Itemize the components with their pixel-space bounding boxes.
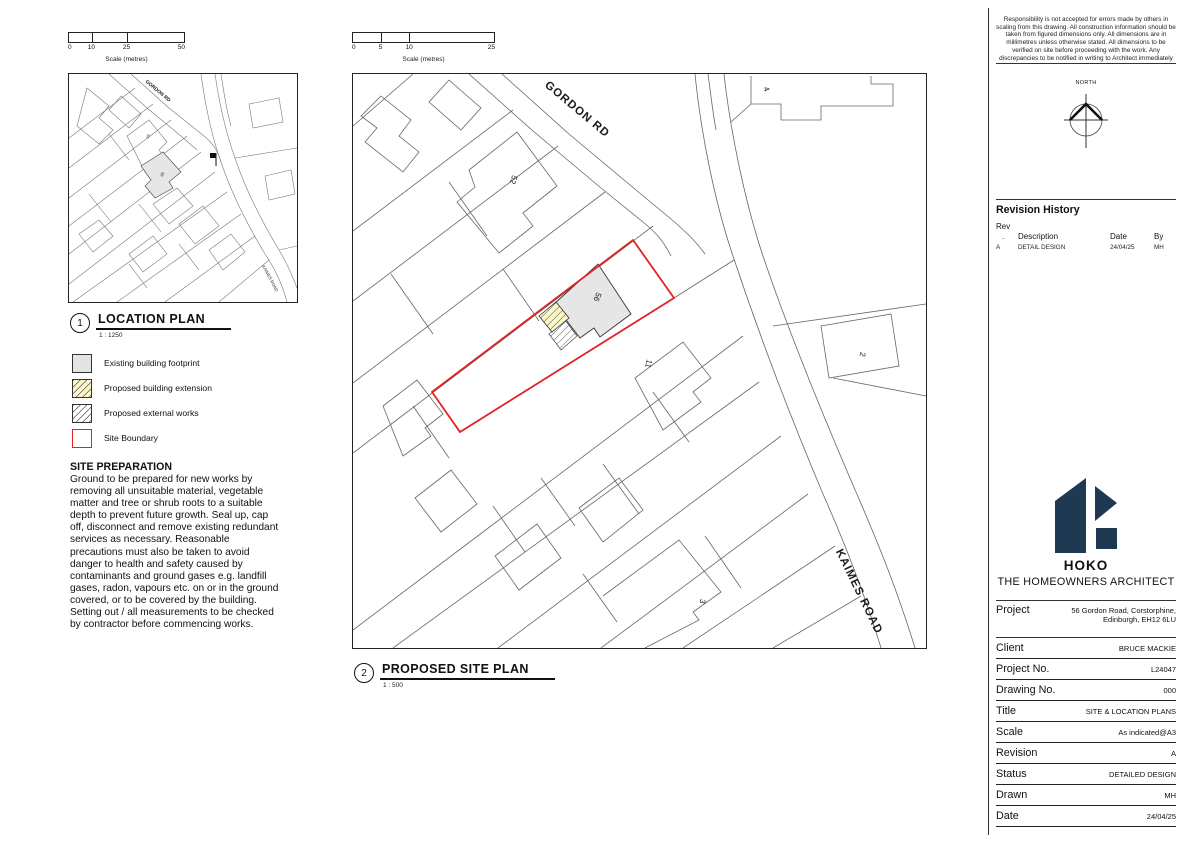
legend-swatch-extension <box>72 379 92 398</box>
plan-number-badge: 1 <box>70 313 90 333</box>
site-preparation-note: SITE PREPARATION Ground to be prepared f… <box>70 461 282 631</box>
scalebar-tick: 25 <box>488 44 495 51</box>
brand-name-wrap: HOKO THE HOMEOWNERS ARCHITECT <box>996 558 1176 588</box>
scalebar-site-plan: 0 5 10 25 Scale (metres) <box>352 32 495 63</box>
field-value: A <box>1171 749 1176 758</box>
plot-label-3: 3 <box>698 598 708 604</box>
scalebar-location-plan: 0 10 25 50 Scale (metres) <box>68 32 185 63</box>
field-label: Drawing No. <box>996 684 1055 696</box>
scalebar-tick: 50 <box>178 44 185 51</box>
field-label: Project No. <box>996 663 1049 675</box>
field-label: Client <box>996 642 1024 654</box>
plot-label-2: 2 <box>858 351 868 357</box>
north-arrow: NORTH <box>996 80 1176 161</box>
revision-col-rev: Rev <box>996 222 1176 231</box>
legend-item-existing: Existing building footprint <box>72 354 212 372</box>
field-label: Date <box>996 810 1019 822</box>
legend-label: Existing building footprint <box>104 358 200 368</box>
legend-label: Proposed external works <box>104 408 199 418</box>
field-value: L24047 <box>1151 665 1176 674</box>
field-row-revision: Revision A <box>996 743 1176 764</box>
site-preparation-body: Ground to be prepared for new works by r… <box>70 474 282 631</box>
drawing-sheet: 0 10 25 50 Scale (metres) 0 5 10 25 Scal… <box>0 0 1191 843</box>
revision-history: Revision History Rev . Description Date … <box>996 204 1176 251</box>
plan-number-badge: 2 <box>354 663 374 683</box>
legend-item-external-works: Proposed external works <box>72 404 212 422</box>
field-value: 24/04/25 <box>1147 812 1176 821</box>
project-label: Project <box>996 604 1030 624</box>
plot-label-52: 52 <box>146 134 151 139</box>
revision-history-heading: Revision History <box>996 204 1176 216</box>
field-label: Title <box>996 705 1016 717</box>
revision-header-row: . Description Date By <box>996 232 1176 241</box>
revision-col-dot: . <box>996 232 1018 241</box>
scalebar-tick: 10 <box>406 44 413 51</box>
plot-label-4: 4 <box>761 86 771 94</box>
legend-item-site-boundary: Site Boundary <box>72 429 212 447</box>
divider <box>996 600 1176 601</box>
field-value: As indicated@A3 <box>1118 728 1176 737</box>
scalebar-tick: 10 <box>88 44 95 51</box>
brand-tagline: THE HOMEOWNERS ARCHITECT <box>996 576 1176 588</box>
site-preparation-heading: SITE PREPARATION <box>70 461 282 473</box>
scalebar-tick: 0 <box>68 44 72 51</box>
road-label-kaimes-road: KAIMES ROAD <box>261 264 279 292</box>
revision-col-date: Date <box>1110 232 1154 241</box>
field-value: BRUCE MACKIE <box>1119 644 1176 653</box>
field-label: Drawn <box>996 789 1027 801</box>
revision-row-description: DETAIL DESIGN <box>1018 244 1110 251</box>
plan-scale-text: 1 : 1250 <box>96 330 231 339</box>
revision-col-by: By <box>1154 232 1176 241</box>
field-value: MH <box>1164 791 1176 800</box>
road-label-gordon-rd: GORDON RD <box>144 79 172 104</box>
plan-title-text: PROPOSED SITE PLAN <box>380 662 555 680</box>
location-plan-title: 1 LOCATION PLAN 1 : 1250 <box>70 312 231 339</box>
divider <box>996 199 1176 200</box>
site-marker-flag <box>210 153 216 166</box>
field-label: Scale <box>996 726 1023 738</box>
legend-label: Site Boundary <box>104 433 158 443</box>
legend-swatch-site-boundary <box>72 429 92 448</box>
field-row-drawing-no: Drawing No. 000 <box>996 680 1176 701</box>
plan-scale-text: 1 : 500 <box>380 680 555 689</box>
scalebar-caption: Scale (metres) <box>68 56 185 63</box>
field-value: 000 <box>1163 686 1176 695</box>
legend-item-extension: Proposed building extension <box>72 379 212 397</box>
field-row-client: Client BRUCE MACKIE <box>996 638 1176 659</box>
road-label-gordon-rd: GORDON RD <box>542 79 611 140</box>
revision-row: A DETAIL DESIGN 24/04/25 MH <box>996 244 1176 251</box>
titleblock-border <box>988 8 989 835</box>
plan-title-text: LOCATION PLAN <box>96 312 231 330</box>
project-value: 56 Gordon Road, Corstorphine, Edinburgh,… <box>1058 604 1176 624</box>
plot-label-52: 52 <box>508 174 519 186</box>
field-value: SITE & LOCATION PLANS <box>1086 707 1176 716</box>
titleblock-fields: Client BRUCE MACKIE Project No. L24047 D… <box>996 638 1176 827</box>
site-plan-title: 2 PROPOSED SITE PLAN 1 : 500 <box>354 662 555 689</box>
disclaimer: Responsibility is not accepted for error… <box>996 16 1176 62</box>
field-label: Revision <box>996 747 1037 759</box>
field-row-status: Status DETAILED DESIGN <box>996 764 1176 785</box>
plot-label-11: 11 <box>643 358 654 369</box>
scalebar-tick: 25 <box>123 44 130 51</box>
hoko-logo <box>1055 472 1119 559</box>
location-plan-map: GORDON RD KAIMES ROAD 56 52 <box>68 73 298 303</box>
revision-row-by: MH <box>1154 244 1176 251</box>
field-value: DETAILED DESIGN <box>1109 770 1176 779</box>
project-row: Project 56 Gordon Road, Corstorphine, Ed… <box>996 604 1176 624</box>
field-row-date: Date 24/04/25 <box>996 806 1176 827</box>
field-row-title: Title SITE & LOCATION PLANS <box>996 701 1176 722</box>
field-label: Status <box>996 768 1027 780</box>
divider <box>996 63 1176 64</box>
revision-col-description: Description <box>1018 232 1110 241</box>
scalebar-caption: Scale (metres) <box>352 56 495 63</box>
proposed-site-plan-map: GORDON RD KAIMES ROAD 52 56 11 4 2 3 <box>352 73 927 649</box>
road-label-kaimes-road: KAIMES ROAD <box>833 547 884 636</box>
field-row-project-no: Project No. L24047 <box>996 659 1176 680</box>
legend: Existing building footprint Proposed bui… <box>72 354 212 454</box>
north-arrow-icon <box>996 86 1176 156</box>
scalebar-bar <box>352 32 495 43</box>
brand-name: HOKO <box>996 558 1176 573</box>
revision-row-rev: A <box>996 244 1018 251</box>
legend-label: Proposed building extension <box>104 383 212 393</box>
scalebar-tick: 5 <box>379 44 383 51</box>
scalebar-tick: 0 <box>352 44 356 51</box>
field-row-scale: Scale As indicated@A3 <box>996 722 1176 743</box>
scalebar-bar <box>68 32 185 43</box>
field-row-drawn: Drawn MH <box>996 785 1176 806</box>
hoko-logo-icon <box>1055 472 1119 554</box>
disclaimer-text: Responsibility is not accepted for error… <box>996 16 1176 62</box>
revision-row-date: 24/04/25 <box>1110 244 1154 251</box>
legend-swatch-external-works <box>72 404 92 423</box>
legend-swatch-existing <box>72 354 92 373</box>
